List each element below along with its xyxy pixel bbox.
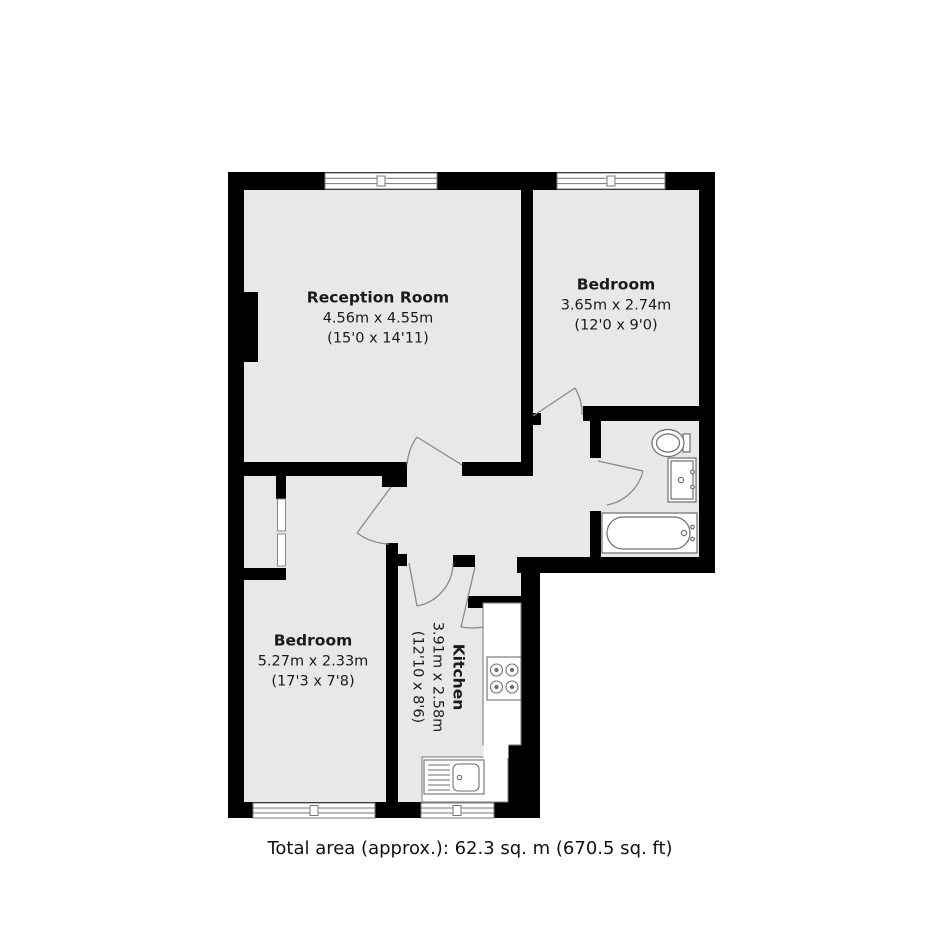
reception-room-size-imperial: (15'0 x 14'11) [307,329,449,349]
bedroom-bottom-size-imperial: (17'3 x 7'8) [258,672,369,692]
bedroom-bottom-label: Bedroom 5.27m x 2.33m (17'3 x 7'8) [258,630,369,691]
cupboard-panel-top [278,499,286,531]
reception-room-label: Reception Room 4.56m x 4.55m (15'0 x 14'… [307,287,449,348]
kitchen-sink [424,760,484,794]
window-kitchen [421,803,494,818]
window-bedroom-top [557,173,665,189]
wall-reception-door-jamb [382,476,407,487]
bedroom-bottom-name: Bedroom [258,630,369,651]
wall-kitchen-door-jamb-right [453,555,475,567]
wall-partition-cap [276,476,286,499]
wall-right-upper [699,190,715,573]
cupboard-panel-bottom [278,534,286,566]
window-reception [325,173,437,189]
wall-chimney-breast [244,292,258,362]
total-area-text: Total area (approx.): 62.3 sq. m (670.5 … [0,838,940,859]
bedroom-top-size-metric: 3.65m x 2.74m [561,296,672,316]
bedroom-bottom-size-metric: 5.27m x 2.33m [258,652,369,672]
wall-bathroom-bottom [517,557,715,573]
bedroom-top-size-imperial: (12'0 x 9'0) [561,316,672,336]
floor-footprint [228,172,715,818]
floorplan-page: Reception Room 4.56m x 4.55m (15'0 x 14'… [0,0,940,940]
wall-reception-bedroom-divider [521,190,533,462]
wall-bedroom2-kitchen-divider [386,543,398,802]
washbasin [668,458,696,502]
wall-bedroom-bottom [583,406,715,421]
kitchen-counter-joint [484,744,509,758]
hob [487,657,521,700]
wall-reception-bottom-left [228,462,407,476]
bathtub [602,513,697,553]
wall-left [228,190,244,818]
toilet [652,430,690,457]
floorplan-drawing [0,0,940,940]
wall-bathroom-left-lower [590,511,601,557]
wall-reception-bottom-right [462,462,533,476]
kitchen-name: Kitchen [447,622,468,733]
kitchen-label: Kitchen 3.91m x 2.58m (12'10 x 8'6) [407,622,468,733]
wall-bedroom2-top-left [228,568,286,580]
floor-area [228,172,715,818]
bedroom-top-label: Bedroom 3.65m x 2.74m (12'0 x 9'0) [561,274,672,335]
bedroom-top-name: Bedroom [561,274,672,295]
wall-kitchen-right [521,557,540,745]
reception-room-name: Reception Room [307,287,449,308]
kitchen-size-imperial: (12'10 x 8'6) [407,622,427,733]
reception-room-size-metric: 4.56m x 4.55m [307,309,449,329]
wall-bathroom-left-upper [590,421,601,458]
wall-kitchen-door-jamb-left [398,554,407,566]
kitchen-size-metric: 3.91m x 2.58m [427,622,447,733]
window-bedroom-bottom [253,803,375,818]
